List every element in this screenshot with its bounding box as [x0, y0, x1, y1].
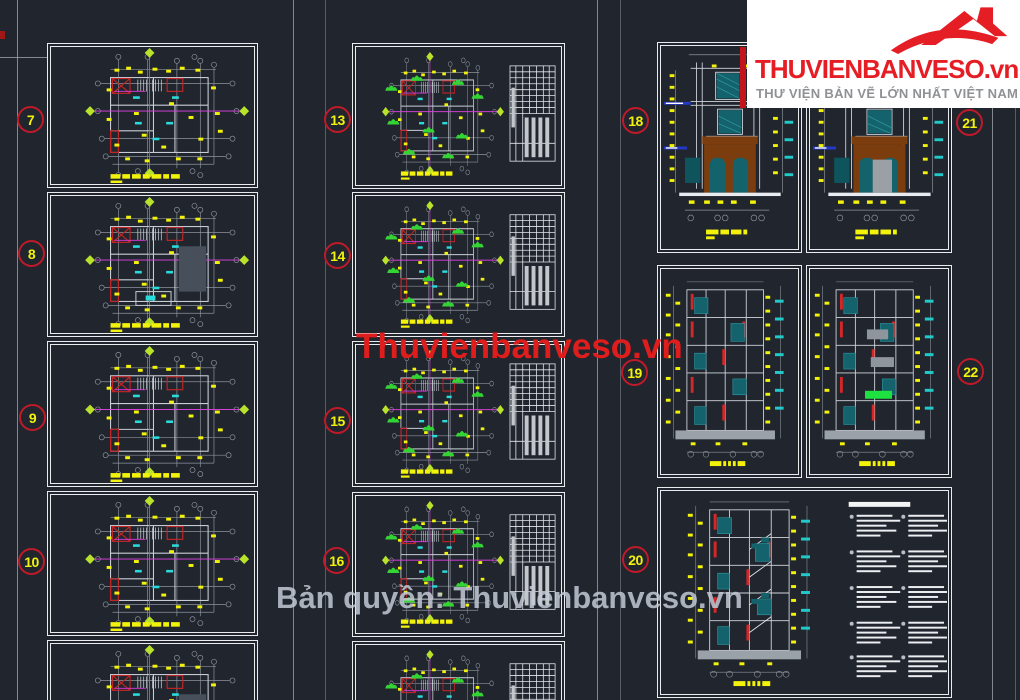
house-roof-icon [884, 2, 1016, 54]
badge-label: 15 [330, 413, 345, 429]
sheet-number-badge: 20 [622, 546, 649, 573]
floor-plan-drawing [52, 346, 253, 482]
badge-label: 13 [330, 112, 345, 128]
sheet-number-badge: 18 [622, 107, 649, 134]
sheet-7[interactable] [47, 43, 258, 188]
sheet-number-badge: 9 [19, 404, 46, 431]
floor-plan-schedule-drawing [357, 646, 560, 700]
grid-line-horizontal [0, 57, 47, 58]
sheet-number-badge: 15 [324, 407, 351, 434]
logo-brand-text: THUVIENBANVESO.vn [755, 54, 1018, 85]
badge-label: 18 [628, 113, 643, 129]
logo-red-bar [740, 47, 746, 108]
badge-label: 16 [329, 553, 344, 569]
site-logo: THUVIENBANVESO.vn THƯ VIỆN BẢN VẼ LỚN NH… [747, 0, 1020, 108]
cad-canvas: 7 8 9 10 13 14 15 16 18 19 20 21 22 Thuv… [0, 0, 1020, 700]
badge-label: 10 [24, 554, 39, 570]
badge-label: 14 [330, 248, 345, 264]
sheet-22[interactable] [806, 265, 952, 478]
sheet-number-badge: 21 [956, 109, 983, 136]
copyright-watermark: Bản quyền: Thuvienbanveso.vn [276, 580, 743, 616]
red-edge-mark [0, 31, 5, 39]
sheet-number-badge: 10 [18, 548, 45, 575]
badge-label: 7 [27, 112, 34, 128]
badge-label: 9 [29, 410, 36, 426]
badge-label: 22 [963, 364, 978, 380]
badge-label: 21 [962, 115, 977, 131]
sheet-number-badge: 16 [323, 547, 350, 574]
sheet-8[interactable] [47, 192, 258, 337]
sheet-number-badge: 22 [957, 358, 984, 385]
center-watermark: Thuvienbanveso.vn [356, 327, 683, 367]
grid-line-vertical [17, 0, 18, 700]
section-drawing [811, 270, 947, 473]
floor-plan-schedule-drawing [357, 48, 560, 184]
sheet-9[interactable] [47, 341, 258, 487]
sheet-14[interactable] [352, 192, 565, 337]
sheet-number-badge: 13 [324, 106, 351, 133]
sheet-19[interactable] [657, 265, 802, 478]
sheet-13[interactable] [352, 43, 565, 189]
floor-plan-drawing [52, 645, 253, 700]
sheet-partial-bottom-middle[interactable] [352, 641, 565, 700]
sheet-10[interactable] [47, 491, 258, 636]
floor-plan-schedule-drawing [357, 197, 560, 332]
sheet-number-badge: 14 [324, 242, 351, 269]
floor-plan-drawing [52, 496, 253, 631]
sheet-partial-bottom-left[interactable] [47, 640, 258, 700]
sheet-number-badge: 7 [17, 106, 44, 133]
floor-plan-drawing [52, 197, 253, 332]
sheet-number-badge: 8 [18, 240, 45, 267]
floor-plan-drawing [52, 48, 253, 183]
logo-tagline-text: THƯ VIỆN BẢN VẼ LỚN NHẤT VIỆT NAM [756, 86, 1018, 101]
badge-label: 8 [28, 246, 35, 262]
badge-label: 20 [628, 552, 643, 568]
section-drawing [662, 270, 797, 473]
